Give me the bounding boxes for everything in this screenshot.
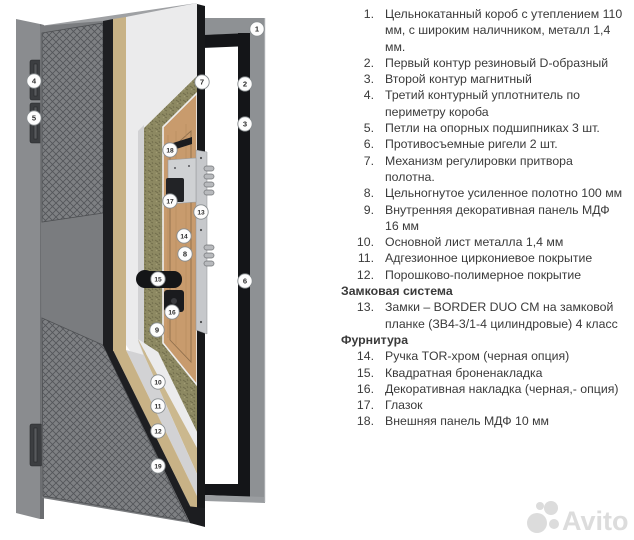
svg-text:18: 18	[166, 148, 174, 155]
svg-text:9: 9	[155, 326, 159, 335]
outer-panel-texture-top	[42, 23, 103, 222]
avito-logo-icon	[527, 501, 559, 533]
part-item-16: 16.Декоративная накладка (черная,- опция…	[341, 381, 631, 397]
svg-text:17: 17	[166, 199, 174, 206]
part-item-1: 1.Цельнокатанный короб с утеплением 110 …	[341, 6, 631, 55]
part-number: 3.	[341, 71, 374, 87]
callout-1: 1	[250, 22, 264, 36]
callout-7: 7	[195, 75, 209, 89]
part-description: Цельнокатанный короб с утеплением 110 мм…	[385, 6, 622, 55]
door-frame	[202, 18, 265, 503]
part-number: 2.	[341, 55, 374, 71]
svg-text:15: 15	[154, 277, 162, 284]
svg-text:3: 3	[243, 120, 247, 129]
callout-17: 17	[163, 194, 177, 208]
door-cutaway-diagram: 12345678910111213141516171819	[0, 0, 320, 540]
callout-4: 4	[27, 74, 41, 88]
part-item-10: 10.Основной лист металла 1,4 мм	[341, 234, 631, 250]
part-description: Первый контур резиновый D-образный	[385, 55, 608, 71]
part-item-5: 5.Петли на опорных подшипниках 3 шт.	[341, 120, 631, 136]
callout-19: 19	[151, 459, 165, 473]
part-description: Цельногнутое усиленное полотно 100 мм	[385, 185, 622, 201]
part-number: 7.	[341, 153, 374, 186]
callout-2: 2	[238, 77, 252, 91]
callout-11: 11	[151, 399, 165, 413]
part-description: Квадратная броненакладка	[385, 365, 543, 381]
part-description: Петли на опорных подшипниках 3 шт.	[385, 120, 600, 136]
listing-image: 12345678910111213141516171819 1.Цельнока…	[0, 0, 634, 540]
part-description: Внешняя панель МДФ 10 мм	[385, 413, 549, 429]
part-description: Замки – BORDER DUO CM на замковой планке…	[385, 299, 618, 332]
part-number: 14.	[341, 348, 374, 364]
callout-5: 5	[27, 111, 41, 125]
part-number: 16.	[341, 381, 374, 397]
part-description: Противосъемные ригели 2 шт.	[385, 136, 558, 152]
part-item-9: 9.Внутренняя декоративная панель МДФ 16 …	[341, 202, 631, 235]
part-description: Внутренняя декоративная панель МДФ 16 мм	[385, 202, 610, 235]
part-description: Адгезионное циркониевое покрытие	[385, 250, 592, 266]
callout-13: 13	[194, 205, 208, 219]
part-item-8: 8.Цельногнутое усиленное полотно 100 мм	[341, 185, 631, 201]
part-description: Порошково-полимерное покрытие	[385, 267, 581, 283]
part-item-3: 3.Второй контур магнитный	[341, 71, 631, 87]
svg-text:13: 13	[197, 210, 205, 217]
callout-6: 6	[238, 274, 252, 288]
part-number: 17.	[341, 397, 374, 413]
part-item-12: 12.Порошково-полимерное покрытие	[341, 267, 631, 283]
frame-right-casing	[250, 18, 265, 502]
part-number: 9.	[341, 202, 374, 235]
part-description: Механизм регулировки притвора полотна.	[385, 153, 573, 186]
part-description: Основной лист металла 1,4 мм	[385, 234, 563, 250]
svg-text:16: 16	[168, 310, 176, 317]
part-item-14: 14.Ручка TOR-хром (черная опция)	[341, 348, 631, 364]
svg-text:11: 11	[155, 404, 162, 411]
part-number: 4.	[341, 87, 374, 120]
frame-right-rebate	[238, 33, 250, 497]
callout-9: 9	[150, 323, 164, 337]
part-number: 6.	[341, 136, 374, 152]
part-number: 18.	[341, 413, 374, 429]
part-description: Третий контурный уплотнитель по периметр…	[385, 87, 580, 120]
part-item-18: 18.Внешняя панель МДФ 10 мм	[341, 413, 631, 429]
part-item-7: 7.Механизм регулировки притвора полотна.	[341, 153, 631, 186]
svg-text:8: 8	[183, 250, 187, 259]
svg-text:7: 7	[200, 78, 204, 87]
callout-16: 16	[165, 305, 179, 319]
svg-text:14: 14	[180, 234, 188, 241]
part-item-15: 15.Квадратная броненакладка	[341, 365, 631, 381]
part-item-17: 17.Глазок	[341, 397, 631, 413]
part-number: 12.	[341, 267, 374, 283]
part-description: Второй контур магнитный	[385, 71, 532, 87]
section-header: Фурнитура	[341, 332, 631, 348]
part-item-2: 2.Первый контур резиновый D-образный	[341, 55, 631, 71]
callout-12: 12	[151, 424, 165, 438]
part-number: 10.	[341, 234, 374, 250]
part-number: 11.	[341, 250, 374, 266]
svg-text:2: 2	[243, 80, 247, 89]
section-header: Замковая система	[341, 283, 631, 299]
part-number: 1.	[341, 6, 374, 55]
part-description: Декоративная накладка (черная,- опция)	[385, 381, 618, 397]
callout-3: 3	[238, 117, 252, 131]
svg-text:6: 6	[243, 277, 247, 286]
part-number: 13.	[341, 299, 374, 332]
callout-15: 15	[151, 272, 165, 286]
svg-text:10: 10	[154, 380, 162, 387]
layer-gold-vertical	[113, 17, 126, 351]
part-number: 8.	[341, 185, 374, 201]
callout-18: 18	[163, 143, 177, 157]
part-description: Ручка TOR-хром (черная опция)	[385, 348, 569, 364]
callout-8: 8	[178, 247, 192, 261]
layer-lightgray-vertical	[138, 125, 144, 356]
svg-text:12: 12	[154, 429, 162, 436]
part-number: 5.	[341, 120, 374, 136]
part-number: 15.	[341, 365, 374, 381]
avito-logo-text: Avito	[562, 506, 629, 536]
callout-10: 10	[151, 375, 165, 389]
frame-threshold	[205, 484, 250, 497]
part-item-6: 6.Противосъемные ригели 2 шт.	[341, 136, 631, 152]
avito-watermark: Avito	[524, 496, 634, 540]
part-description: Глазок	[385, 397, 423, 413]
svg-text:19: 19	[154, 464, 162, 471]
part-item-13: 13.Замки – BORDER DUO CM на замковой пла…	[341, 299, 631, 332]
leaf-edge-bottom-step	[186, 506, 205, 527]
parts-list: 1.Цельнокатанный короб с утеплением 110 …	[341, 6, 631, 430]
part-item-4: 4.Третий контурный уплотнитель по периме…	[341, 87, 631, 120]
part-item-11: 11.Адгезионное циркониевое покрытие	[341, 250, 631, 266]
callout-14: 14	[177, 229, 191, 243]
